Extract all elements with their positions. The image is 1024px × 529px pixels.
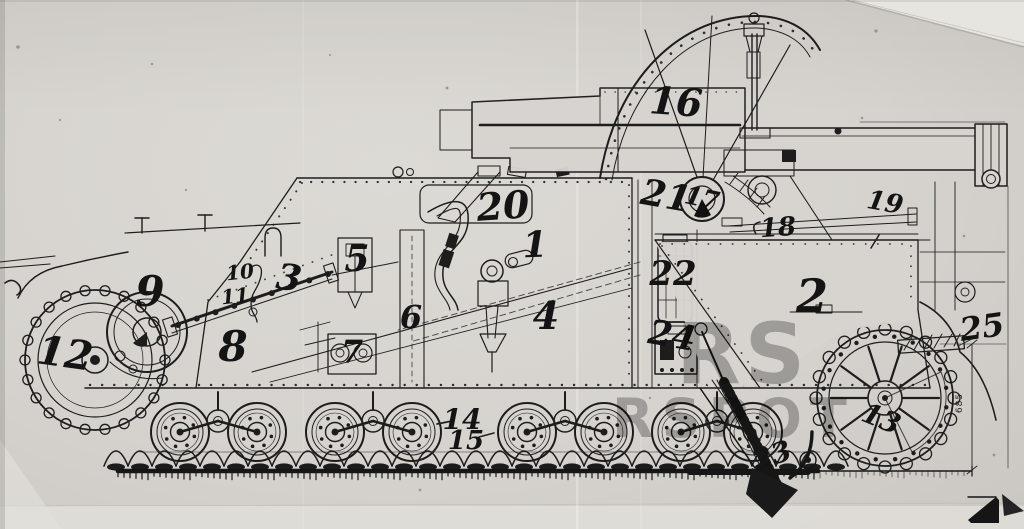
track-links	[104, 451, 848, 471]
rear-drive-sprocket	[810, 323, 960, 473]
drawing-canvas	[0, 0, 1024, 529]
front-idler-wheel	[20, 286, 170, 435]
road-wheels	[151, 392, 782, 461]
casemate	[162, 166, 640, 388]
dimension-value: 685	[955, 393, 965, 413]
fender-line	[85, 385, 930, 388]
shaft-bolts	[175, 271, 331, 328]
gun-assembly	[438, 13, 1007, 240]
scanned-technical-drawing: RSRSPOT 12345678910111213141516171819202…	[0, 0, 1024, 529]
